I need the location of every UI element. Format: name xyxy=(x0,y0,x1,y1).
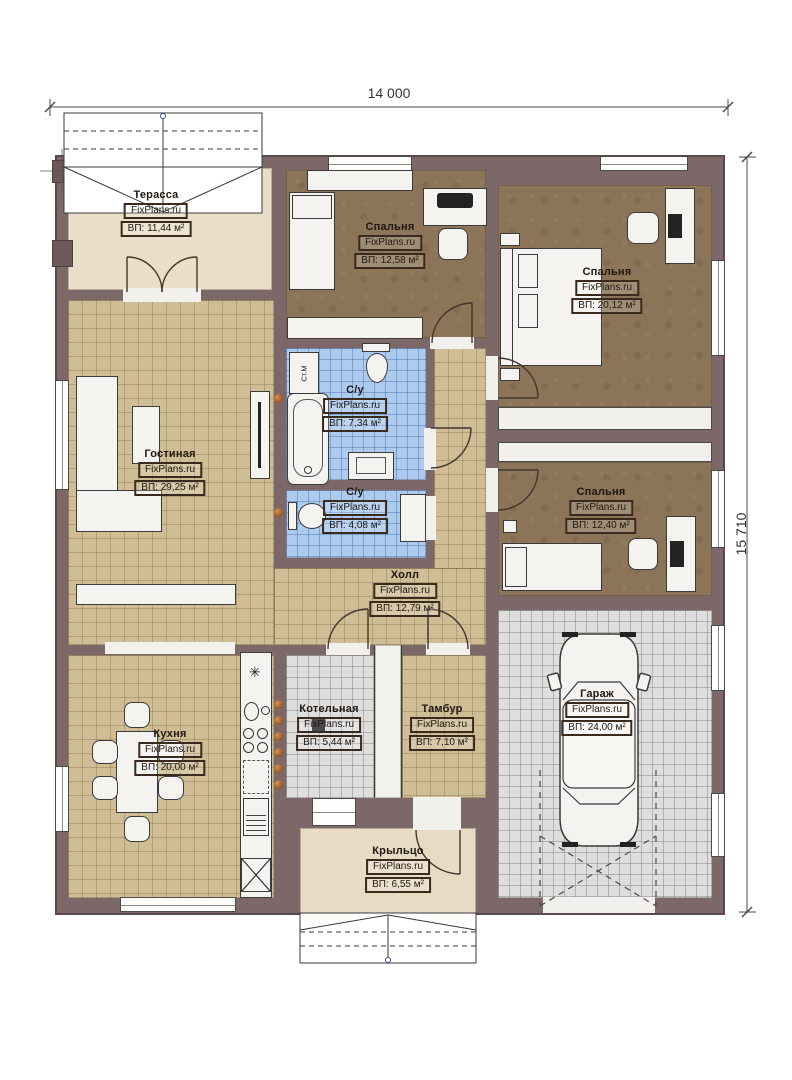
area-tag: ВП: 24,00 м² xyxy=(561,720,632,736)
pillow xyxy=(292,195,332,219)
area-tag: ВП: 4,08 м² xyxy=(322,518,388,534)
room-name: С/у xyxy=(322,385,388,396)
kitchen-living-opening xyxy=(105,642,235,654)
room-label-bedroom-mid: Спальня FixPlans.ru ВП: 12,40 м² xyxy=(565,487,636,534)
chair xyxy=(628,538,658,570)
room-label-bedroom-right: Спальня FixPlans.ru ВП: 20,12 м² xyxy=(571,267,642,314)
door-opening xyxy=(486,356,498,400)
garage-door-opening xyxy=(543,897,655,913)
burner xyxy=(243,742,254,753)
area-tag: ВП: 20,00 м² xyxy=(134,760,205,776)
room-label-terrace: Терасса FixPlans.ru ВП: 11,44 м² xyxy=(121,190,192,237)
area-tag: ВП: 12,40 м² xyxy=(565,518,636,534)
door-opening xyxy=(486,468,498,512)
sofa xyxy=(76,376,118,492)
floor-plan: Ст.М ✳ xyxy=(0,0,792,1080)
door-opening xyxy=(426,643,470,655)
vent-icon xyxy=(274,732,283,741)
pillar xyxy=(52,240,73,267)
room-label-boiler: Котельная FixPlans.ru ВП: 5,44 м² xyxy=(296,704,362,751)
vent-icon xyxy=(274,394,283,403)
window xyxy=(711,793,725,857)
oven-grill xyxy=(246,815,266,833)
brand-tag: FixPlans.ru xyxy=(124,203,188,219)
pillar xyxy=(52,160,73,183)
pillow xyxy=(505,547,527,587)
vent-icon xyxy=(274,716,283,725)
bench xyxy=(76,584,236,605)
door-opening xyxy=(123,288,201,302)
window xyxy=(120,897,236,912)
nightstand xyxy=(500,233,520,246)
brand-tag: FixPlans.ru xyxy=(297,717,361,733)
room-label-hall: Холл FixPlans.ru ВП: 12,79 м² xyxy=(369,570,440,617)
door-opening xyxy=(424,428,436,470)
room-label-living: Гостиная FixPlans.ru ВП: 29,25 м² xyxy=(134,449,205,496)
chair xyxy=(158,776,184,800)
brand-tag: FixPlans.ru xyxy=(565,702,629,718)
brand-tag: FixPlans.ru xyxy=(366,859,430,875)
vent-icon xyxy=(274,508,283,517)
room-name: Кухня xyxy=(134,729,205,740)
chair xyxy=(92,740,118,764)
brand-tag: FixPlans.ru xyxy=(373,583,437,599)
vent-icon xyxy=(274,780,283,789)
brand-tag: FixPlans.ru xyxy=(323,500,387,516)
dimension-top-label: 14 000 xyxy=(368,85,411,101)
burner xyxy=(243,728,254,739)
room-label-vestibule: Тамбур FixPlans.ru ВП: 7,10 м² xyxy=(409,704,475,751)
fridge xyxy=(241,858,271,892)
room-label-garage: Гараж FixPlans.ru ВП: 24,00 м² xyxy=(561,689,632,736)
area-tag: ВП: 12,79 м² xyxy=(369,601,440,617)
window xyxy=(328,156,412,171)
room-name: Холл xyxy=(369,570,440,581)
faucet xyxy=(261,706,270,715)
vent-icon xyxy=(274,764,283,773)
vent-icon xyxy=(274,700,283,709)
brand-tag: FixPlans.ru xyxy=(138,742,202,758)
area-tag: ВП: 12,58 м² xyxy=(354,253,425,269)
toilet-tank xyxy=(362,343,390,352)
window xyxy=(600,156,688,171)
room-name: Котельная xyxy=(296,704,362,715)
pillow xyxy=(518,254,538,288)
window xyxy=(55,766,69,832)
window xyxy=(711,470,725,548)
wardrobe xyxy=(307,170,413,191)
wardrobe-strip xyxy=(498,407,712,430)
headboard xyxy=(500,248,513,366)
dimension-right-label: 15 710 xyxy=(733,512,749,555)
room-name: Терасса xyxy=(121,190,192,201)
brand-tag: FixPlans.ru xyxy=(138,462,202,478)
room-name: Гараж xyxy=(561,689,632,700)
sink-basin xyxy=(356,457,386,474)
nightstand xyxy=(503,520,517,533)
computer xyxy=(670,541,684,567)
entrance-door-opening xyxy=(413,797,461,830)
hall-corridor-floor xyxy=(434,348,486,570)
brand-tag: FixPlans.ru xyxy=(575,280,639,296)
wardrobe-strip xyxy=(498,442,712,462)
tv xyxy=(258,402,261,468)
chair xyxy=(92,776,118,800)
brand-tag: FixPlans.ru xyxy=(569,500,633,516)
door-opening xyxy=(430,337,474,349)
area-tag: ВП: 29,25 м² xyxy=(134,480,205,496)
cooker-hood-icon: ✳ xyxy=(249,665,261,679)
chair xyxy=(124,816,150,842)
room-name: Тамбур xyxy=(409,704,475,715)
area-tag: ВП: 20,12 м² xyxy=(571,298,642,314)
room-label-bathroom-small: С/у FixPlans.ru ВП: 4,08 м² xyxy=(322,487,388,534)
area-tag: ВП: 7,34 м² xyxy=(322,416,388,432)
room-label-bathroom-big: С/у FixPlans.ru ВП: 7,34 м² xyxy=(322,385,388,432)
brand-tag: FixPlans.ru xyxy=(410,717,474,733)
pillow xyxy=(518,294,538,328)
chair xyxy=(124,702,150,728)
window xyxy=(55,380,69,490)
washing-machine-label: Ст.М xyxy=(289,352,319,394)
drain xyxy=(304,466,312,474)
printer xyxy=(437,193,473,208)
dimension-right xyxy=(739,152,756,917)
kitchen-sink xyxy=(244,702,259,721)
burner xyxy=(257,728,268,739)
room-name: Спальня xyxy=(571,267,642,278)
dimension-top xyxy=(45,99,733,116)
room-label-kitchen: Кухня FixPlans.ru ВП: 20,00 м² xyxy=(134,729,205,776)
window xyxy=(711,260,725,356)
room-label-bedroom-top: Спальня FixPlans.ru ВП: 12,58 м² xyxy=(354,222,425,269)
wardrobe xyxy=(287,317,423,339)
area-tag: ВП: 7,10 м² xyxy=(409,735,475,751)
room-name: Спальня xyxy=(565,487,636,498)
computer xyxy=(668,214,682,238)
vent-icon xyxy=(274,748,283,757)
room-label-porch: Крыльцо FixPlans.ru ВП: 6,55 м² xyxy=(365,846,431,893)
chair xyxy=(438,228,468,260)
shaft xyxy=(374,645,402,798)
door-panel xyxy=(400,494,426,542)
dishwasher xyxy=(243,760,269,794)
brand-tag: FixPlans.ru xyxy=(358,235,422,251)
window xyxy=(711,625,725,691)
burner xyxy=(257,742,268,753)
porch-stairs xyxy=(300,913,476,963)
toilet-tank xyxy=(288,502,297,530)
room-name: С/у xyxy=(322,487,388,498)
chair xyxy=(627,212,659,244)
area-tag: ВП: 6,55 м² xyxy=(365,877,431,893)
nightstand xyxy=(500,368,520,381)
area-tag: ВП: 5,44 м² xyxy=(296,735,362,751)
room-name: Крыльцо xyxy=(365,846,431,857)
window xyxy=(312,798,356,826)
room-name: Спальня xyxy=(354,222,425,233)
door-opening xyxy=(326,643,370,655)
sofa xyxy=(76,490,162,532)
room-name: Гостиная xyxy=(134,449,205,460)
area-tag: ВП: 11,44 м² xyxy=(121,221,192,237)
brand-tag: FixPlans.ru xyxy=(323,398,387,414)
room-garage-floor xyxy=(498,610,712,898)
